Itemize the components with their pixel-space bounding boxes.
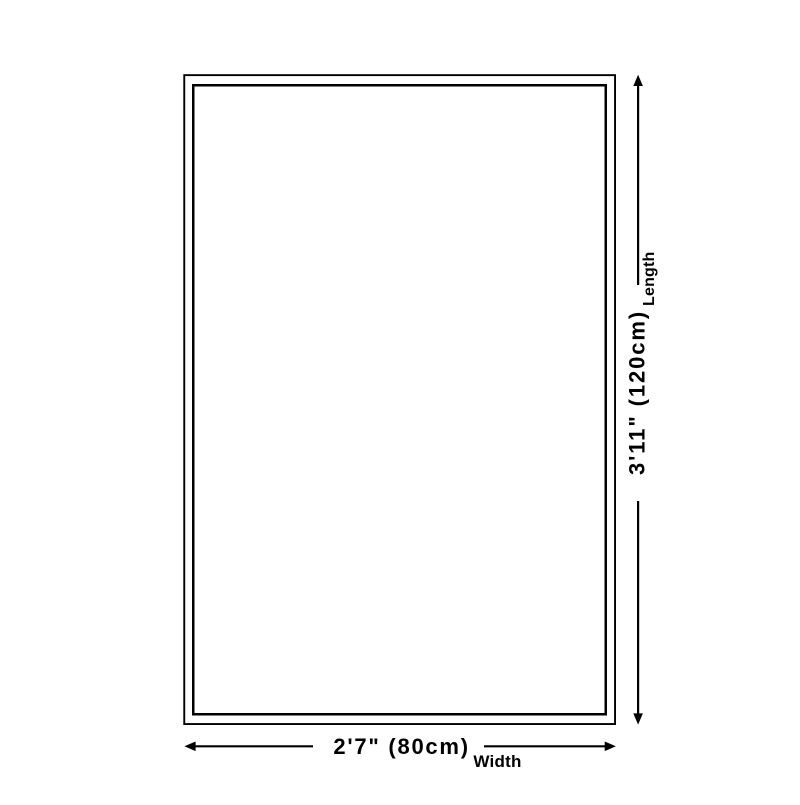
svg-text:Width: Width bbox=[473, 752, 521, 771]
svg-text:Length: Length bbox=[641, 251, 658, 306]
svg-text:3'11" (120cm): 3'11" (120cm) bbox=[624, 310, 649, 475]
svg-text:2'7" (80cm): 2'7" (80cm) bbox=[333, 734, 469, 759]
